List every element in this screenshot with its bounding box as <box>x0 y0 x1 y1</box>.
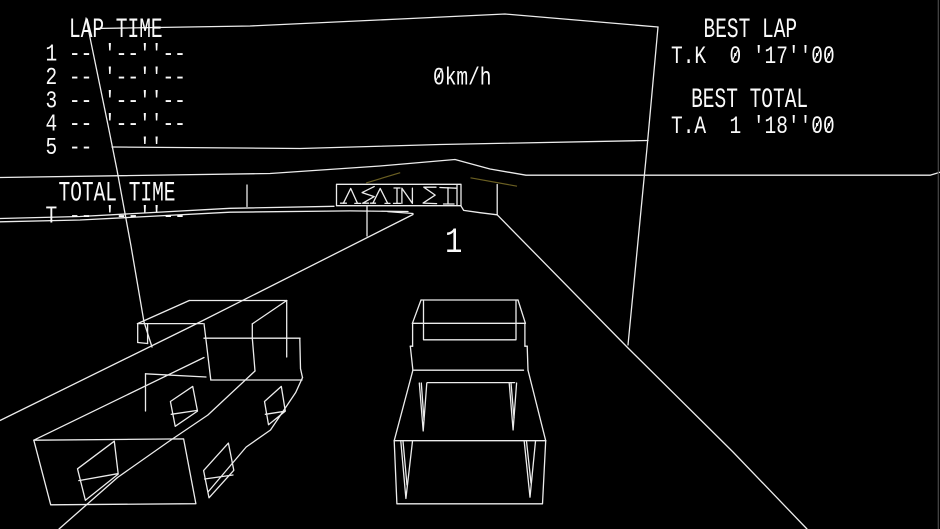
svg-text:T.K 0 '17''00: T.K 0 '17''00 <box>671 42 835 71</box>
svg-text:5 -- '': 5 -- '' <box>46 134 163 161</box>
svg-text:1: 1 <box>445 223 462 263</box>
svg-text:T.A 1 '18''00: T.A 1 '18''00 <box>671 112 835 141</box>
svg-text:0km/h: 0km/h <box>433 63 491 92</box>
svg-text:T -- '--''--: T -- '--''-- <box>46 203 186 230</box>
